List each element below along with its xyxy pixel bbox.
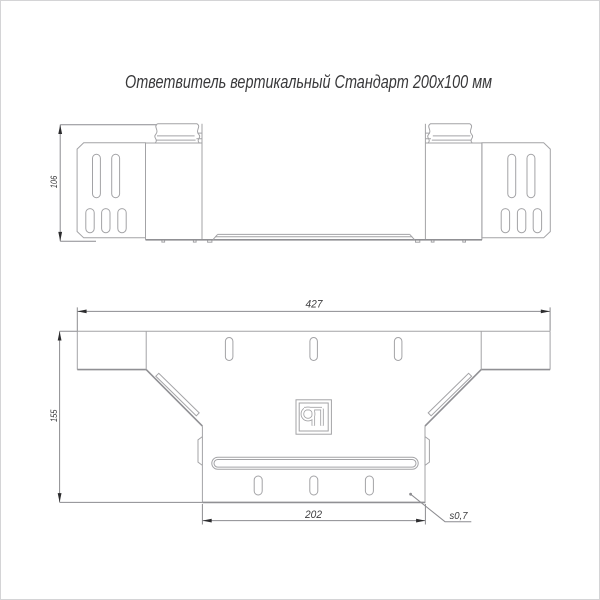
svg-text:202: 202 [304,509,322,521]
svg-text:Ответвитель вертикальный Станд: Ответвитель вертикальный Стандарт 200x10… [125,71,492,92]
svg-text:155: 155 [49,409,60,422]
svg-text:s0,7: s0,7 [450,510,469,522]
svg-text:106: 106 [49,175,60,188]
svg-text:427: 427 [306,299,324,311]
